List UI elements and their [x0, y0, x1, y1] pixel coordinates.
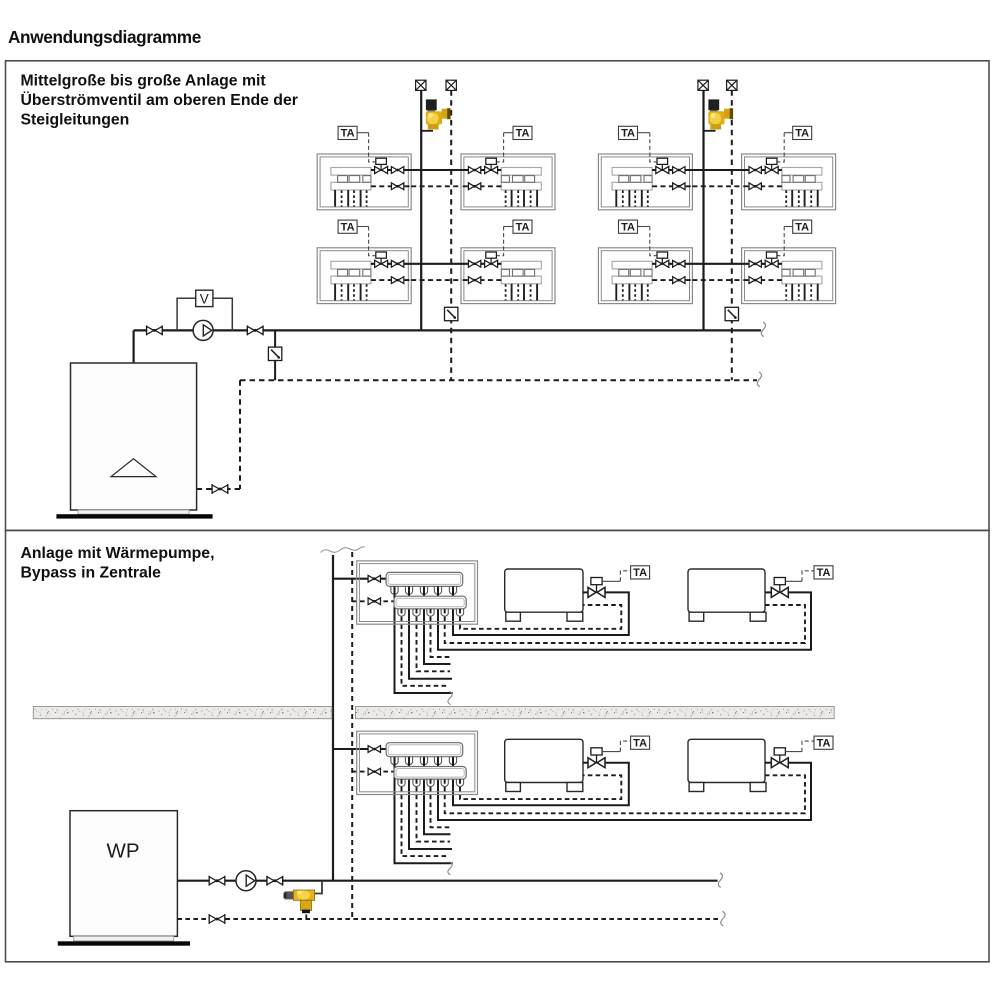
svg-text:Anlage mit Wärmepumpe,: Anlage mit Wärmepumpe, [21, 545, 215, 562]
svg-text:Anwendungsdiagramme: Anwendungsdiagramme [8, 27, 201, 47]
svg-text:Steigleitungen: Steigleitungen [21, 112, 130, 129]
svg-text:Überströmventil am oberen Ende: Überströmventil am oberen Ende der [21, 90, 298, 109]
svg-text:Bypass in Zentrale: Bypass in Zentrale [21, 565, 162, 582]
svg-text:WP: WP [106, 840, 139, 863]
svg-text:V: V [200, 291, 209, 306]
svg-text:Mittelgroße bis große Anlage m: Mittelgroße bis große Anlage mit [21, 73, 267, 90]
